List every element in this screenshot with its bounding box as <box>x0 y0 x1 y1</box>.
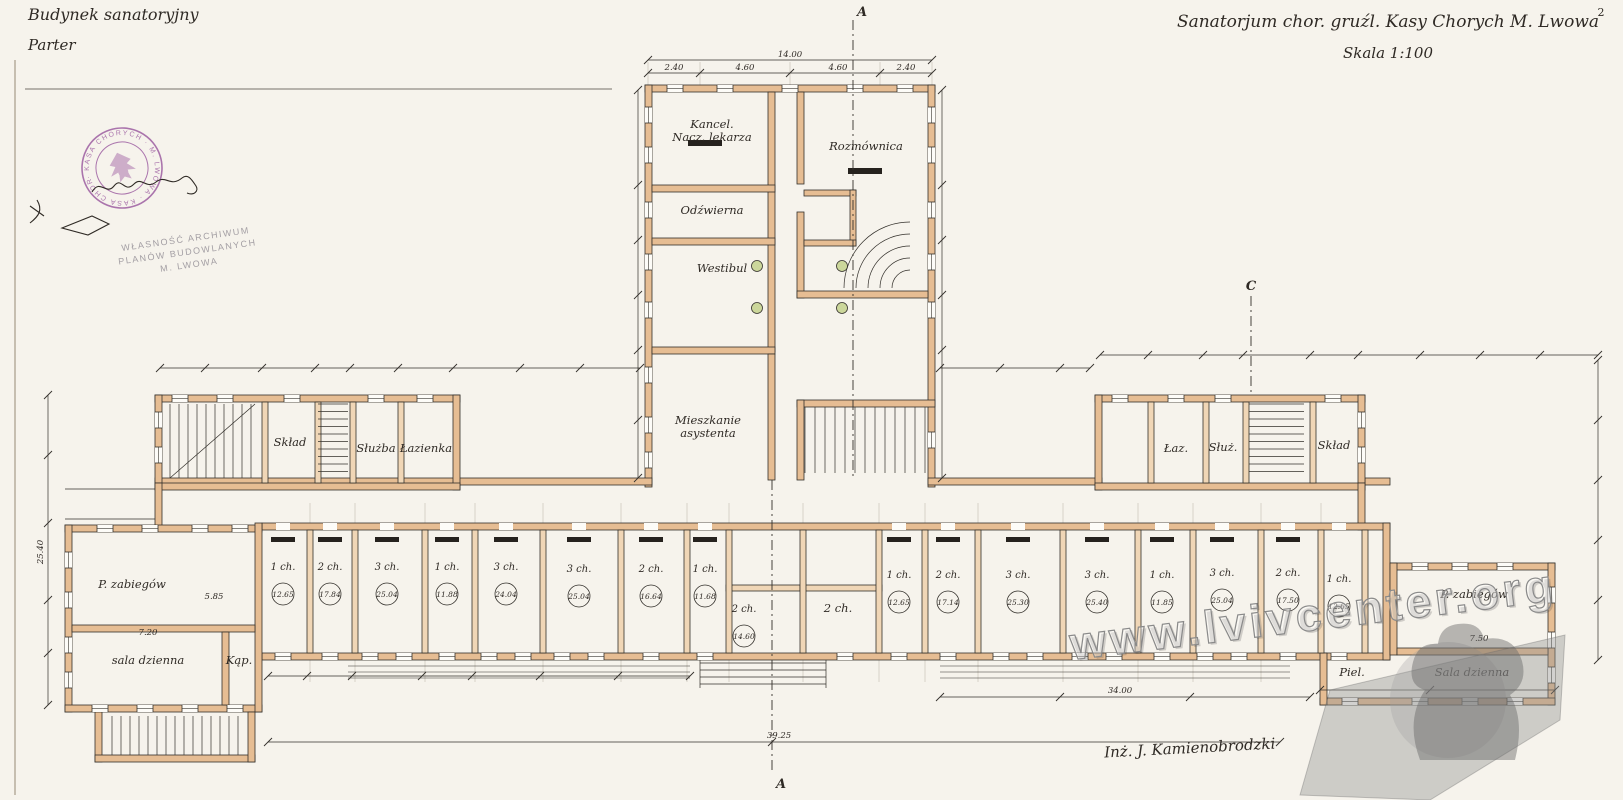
door-opening <box>380 523 394 530</box>
dimension-label: 4.60 <box>828 63 849 73</box>
wall <box>350 402 356 483</box>
room-label: 1 ch. <box>435 562 460 573</box>
wall <box>797 291 928 298</box>
wall <box>1243 402 1249 483</box>
wall <box>928 85 935 487</box>
room-label: 3 ch. <box>1210 568 1235 579</box>
radiator-mark <box>435 537 459 542</box>
wall <box>540 530 546 653</box>
page-number: 2 <box>1598 6 1605 19</box>
room-label: Mieszkanie <box>674 413 741 427</box>
wall <box>155 483 162 530</box>
wall <box>307 530 313 653</box>
room-label: A <box>855 5 867 20</box>
room-label: Służ. <box>1209 440 1238 454</box>
radiator-mark <box>639 537 663 542</box>
room-label: 2 ch. <box>1275 568 1301 579</box>
wall <box>453 395 460 490</box>
door-opening <box>1332 523 1346 530</box>
room-label: Skład <box>274 435 307 449</box>
wall <box>975 530 981 653</box>
door-opening <box>1215 523 1229 530</box>
radiator-mark <box>1006 537 1030 542</box>
wall <box>352 530 358 653</box>
wall <box>1148 402 1154 483</box>
wall <box>768 92 775 352</box>
room-label: 3 ch. <box>1085 570 1110 581</box>
wall <box>315 402 321 483</box>
room-label: P. zabiegów <box>97 577 166 591</box>
scanned-floor-plan-sheet: Budynek sanatoryjny Parter Sanatorjum ch… <box>0 0 1623 800</box>
wall <box>1358 395 1365 490</box>
door-opening <box>1281 523 1295 530</box>
wall <box>472 530 478 653</box>
room-label: C <box>1246 279 1257 294</box>
dimension-label: 4.60 <box>735 63 756 73</box>
title-institution: Sanatorjum chor. gruźl. Kasy Chorych M. … <box>1177 12 1599 32</box>
door-opening <box>941 523 955 530</box>
wall <box>262 402 268 483</box>
wall <box>797 400 804 480</box>
room-label: Westibul <box>697 261 748 275</box>
wall <box>248 712 255 762</box>
room-label: Łaz. <box>1163 441 1188 455</box>
radiator-mark <box>271 537 295 542</box>
dimension-label: 7.20 <box>139 628 159 638</box>
room-label: Służba <box>356 441 395 455</box>
room-label: Łazienka <box>399 441 452 455</box>
room-label: 3 ch. <box>567 564 592 575</box>
wall <box>1310 402 1316 483</box>
room-label: 25.40 <box>1085 598 1108 607</box>
wall <box>797 92 804 184</box>
room-label: Kąp. <box>225 653 252 667</box>
wall <box>155 395 162 490</box>
room-label: A <box>774 777 786 792</box>
room-label: 17.84 <box>319 590 341 599</box>
wall <box>652 238 775 245</box>
floor-plan-drawing: Budynek sanatoryjny Parter Sanatorjum ch… <box>0 0 1623 800</box>
column <box>752 303 763 314</box>
radiator-mark <box>1210 537 1234 542</box>
room-label: 11.68 <box>694 592 716 601</box>
column <box>837 261 848 272</box>
wall <box>804 190 856 196</box>
wall <box>797 400 935 407</box>
wall <box>800 530 806 653</box>
room-label: 2 ch. <box>731 604 757 615</box>
wall <box>876 530 882 653</box>
room-label: 11.88 <box>436 590 458 599</box>
wall <box>797 212 804 298</box>
door-opening <box>1090 523 1104 530</box>
room-label: 1 ch. <box>887 570 912 581</box>
room-label: 2 ch. <box>317 562 343 573</box>
room-label: 3 ch. <box>494 562 519 573</box>
room-label: 2 ch. <box>823 601 852 615</box>
radiator-mark <box>375 537 399 542</box>
room-label: 12.65 <box>272 590 294 599</box>
room-label: 16.64 <box>640 592 662 601</box>
room-label: 25.04 <box>375 590 398 599</box>
room-label: asystenta <box>680 426 736 440</box>
dimension-label: 34.00 <box>1108 686 1133 696</box>
wall <box>922 530 928 653</box>
wall <box>652 347 775 354</box>
room-label: 17.14 <box>937 598 959 607</box>
wall <box>800 585 882 591</box>
room-label: Kancel. <box>689 117 733 131</box>
wall <box>768 354 775 480</box>
room-label: 14.60 <box>733 632 755 641</box>
title-floor: Parter <box>27 36 76 54</box>
wall <box>1095 395 1102 490</box>
room-label: 3 ch. <box>375 562 400 573</box>
door-opening <box>1155 523 1169 530</box>
door-opening <box>440 523 454 530</box>
wall <box>95 755 255 762</box>
room-label: Odźwierna <box>681 203 744 217</box>
room-label: Rozmównica <box>828 139 903 153</box>
wall <box>422 530 428 653</box>
room-label: 25.04 <box>567 592 590 601</box>
door-opening <box>892 523 906 530</box>
wall <box>1320 653 1327 705</box>
room-label: 2 ch. <box>935 570 961 581</box>
title-scale: Skala 1:100 <box>1343 44 1434 62</box>
door-opening <box>276 523 290 530</box>
door-opening <box>698 523 712 530</box>
room-label: Skład <box>1318 438 1351 452</box>
wall <box>1095 483 1365 490</box>
wall <box>155 395 460 402</box>
dimension-label: 25.40 <box>36 539 46 565</box>
door-opening <box>1011 523 1025 530</box>
wall <box>804 240 856 246</box>
radiator-mark <box>887 537 911 542</box>
door-opening <box>644 523 658 530</box>
wall <box>684 530 690 653</box>
room-label: 2 ch. <box>638 564 664 575</box>
title-building: Budynek sanatoryjny <box>27 5 200 24</box>
radiator-mark <box>318 537 342 542</box>
wall <box>95 712 102 762</box>
radiator-mark <box>494 537 518 542</box>
room-label: 1 ch. <box>271 562 296 573</box>
room-label: 12.65 <box>888 598 910 607</box>
dimension-label: 2.40 <box>896 63 917 73</box>
wall <box>618 530 624 653</box>
door-opening <box>499 523 513 530</box>
wall <box>222 632 229 705</box>
room-label: 25.30 <box>1006 598 1029 607</box>
wall <box>1060 530 1066 653</box>
dimension-label: 14.00 <box>778 50 803 60</box>
room-label: 1 ch. <box>1150 570 1175 581</box>
wall <box>850 190 856 246</box>
room-label: Piel. <box>1338 665 1365 679</box>
wall <box>255 523 262 712</box>
radiator-mark <box>936 537 960 542</box>
wall <box>652 185 775 192</box>
room-label: 24.04 <box>494 590 517 599</box>
radiator-mark <box>693 537 717 542</box>
dimension-label: 2.40 <box>664 63 685 73</box>
radiator-mark <box>1276 537 1300 542</box>
column <box>752 261 763 272</box>
room-label: Nacz. lekarza <box>671 130 752 144</box>
door-opening <box>323 523 337 530</box>
door-opening <box>572 523 586 530</box>
dimension-label: 39.25 <box>767 731 791 741</box>
radiator-mark <box>1085 537 1109 542</box>
radiator-mark <box>1150 537 1174 542</box>
wall <box>726 585 802 591</box>
wall <box>1365 478 1390 485</box>
wall <box>155 483 460 490</box>
wall <box>726 530 732 653</box>
room-label: 3 ch. <box>1006 570 1031 581</box>
column <box>837 303 848 314</box>
wall <box>928 478 1102 485</box>
room-label: sala dzienna <box>112 653 185 667</box>
room-label: 1 ch. <box>693 564 718 575</box>
radiator-mark <box>567 537 591 542</box>
dimension-label: 5.85 <box>205 592 224 602</box>
wall <box>72 625 255 632</box>
wall <box>262 653 1390 660</box>
